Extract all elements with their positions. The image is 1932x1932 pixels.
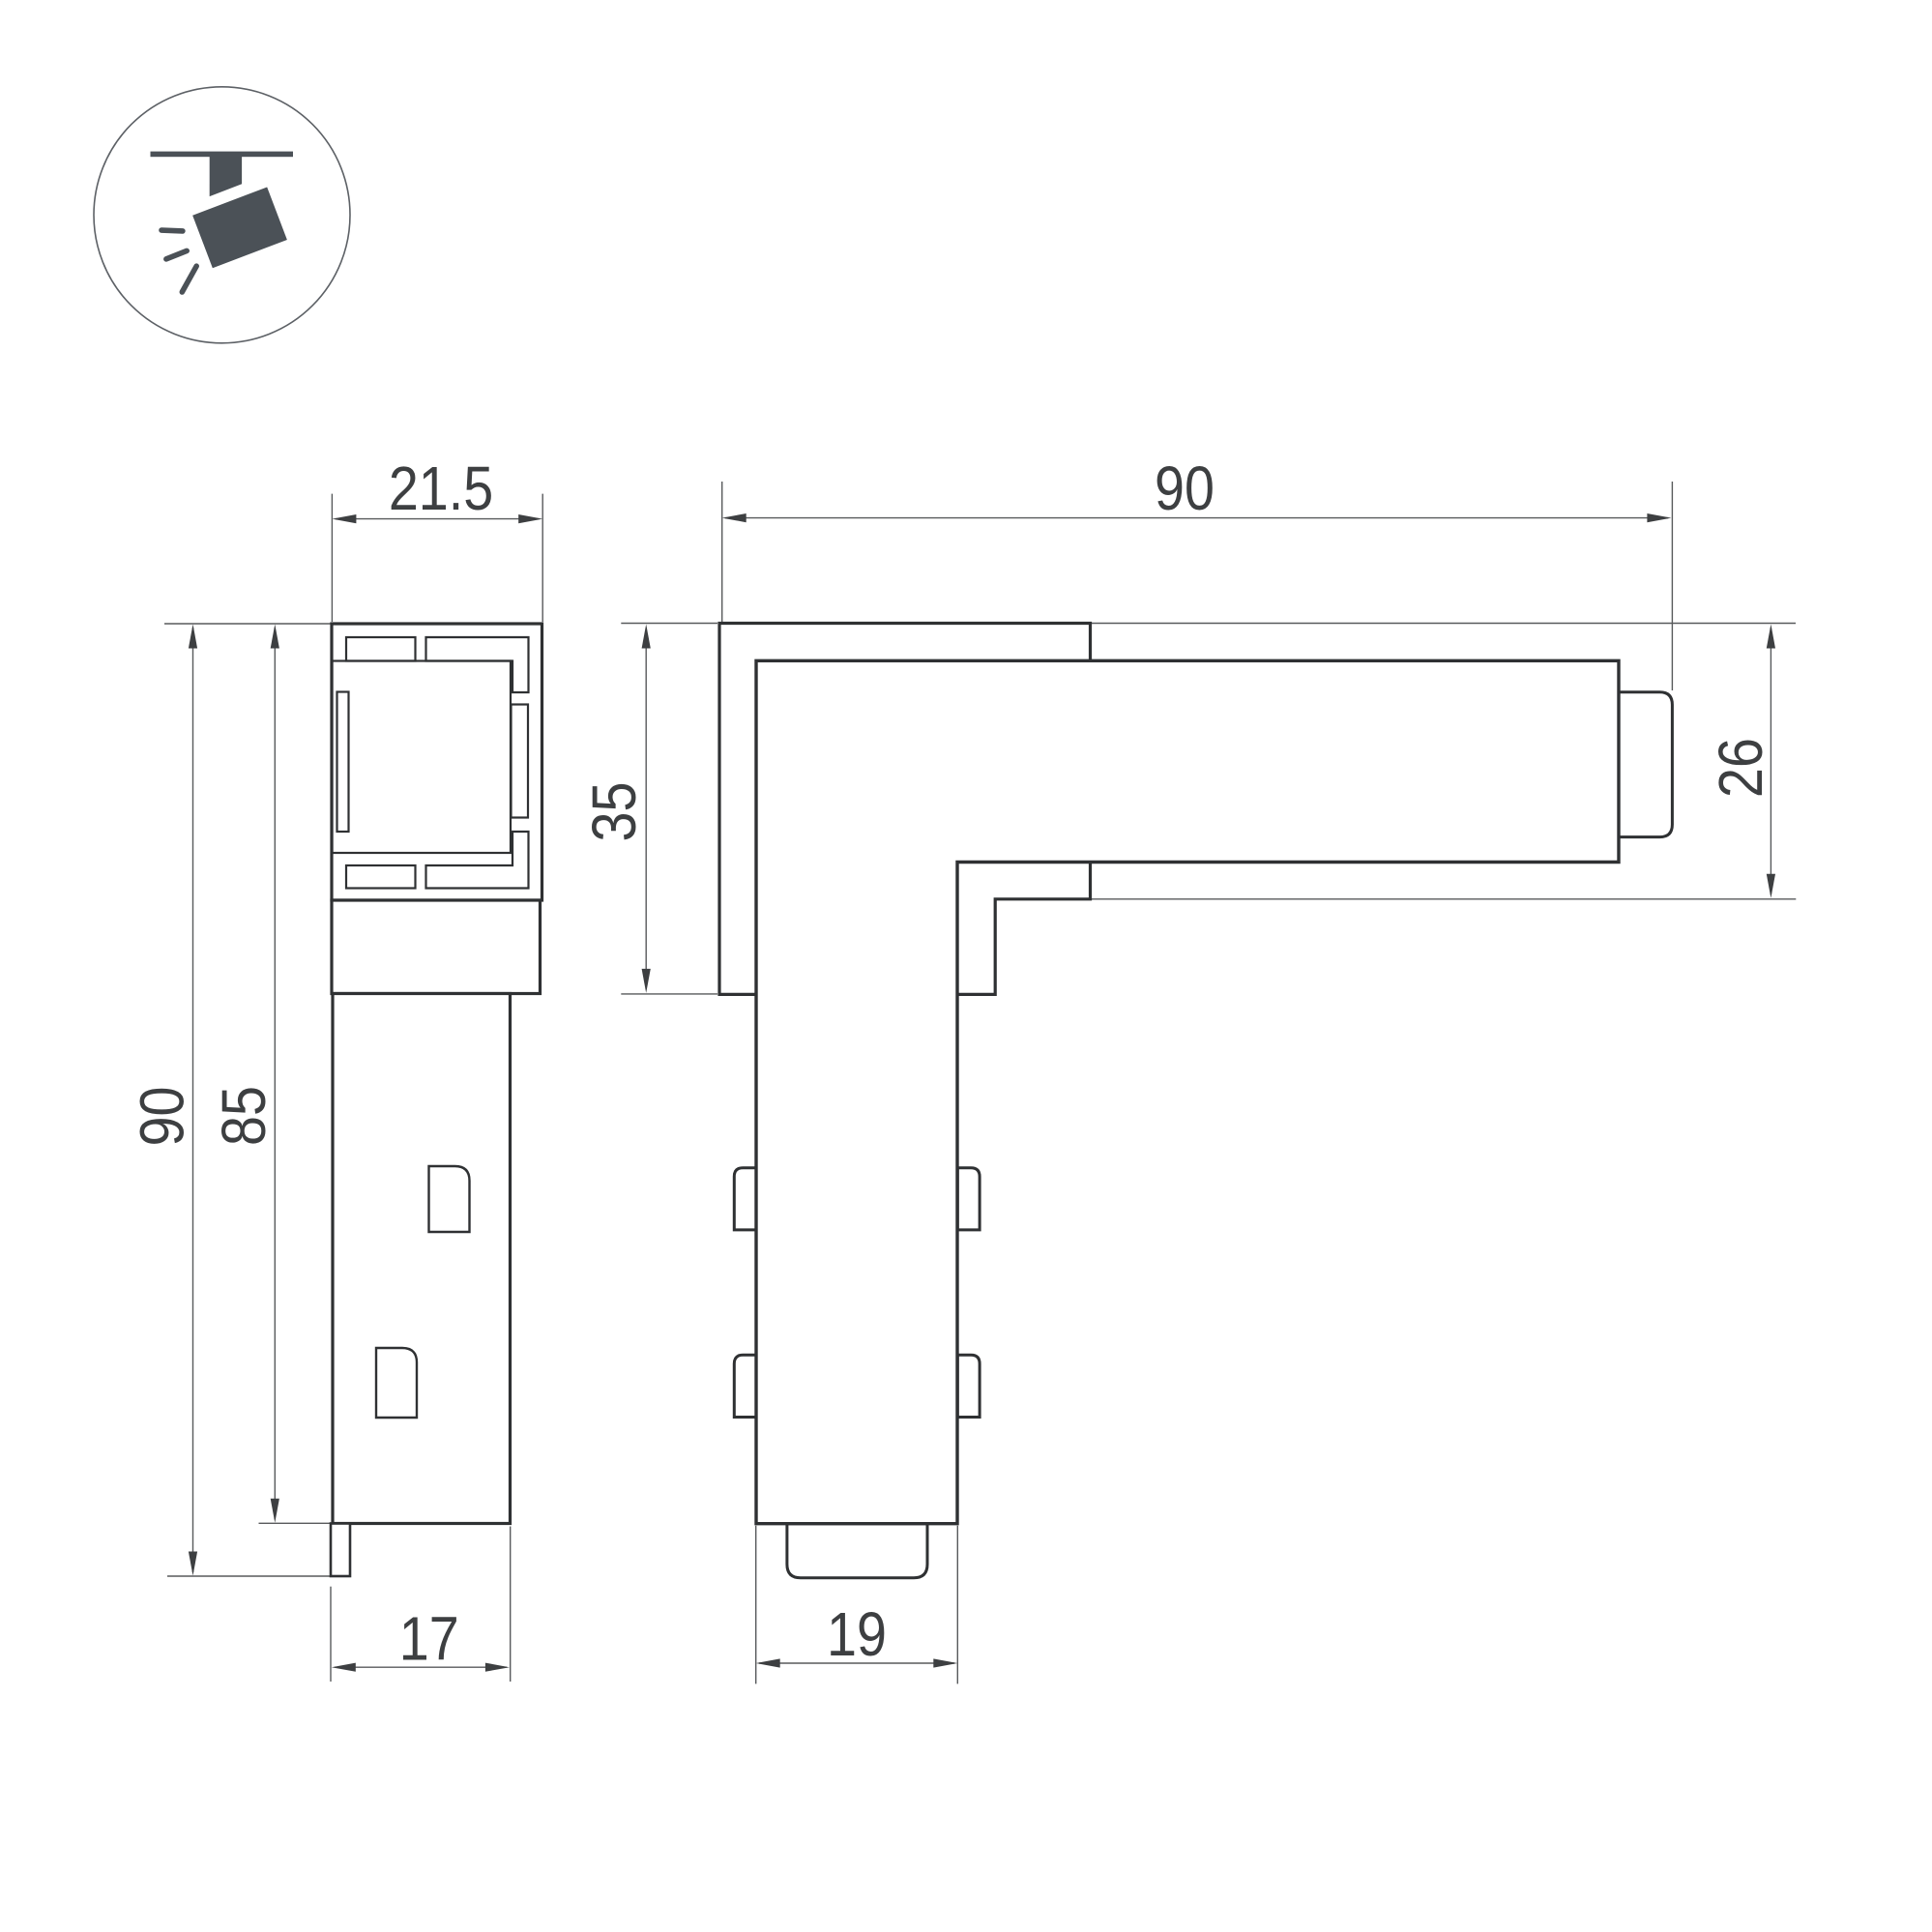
svg-text:85: 85 [209, 1086, 278, 1146]
svg-text:90: 90 [1155, 454, 1215, 523]
svg-text:90: 90 [128, 1087, 196, 1147]
svg-text:17: 17 [399, 1604, 459, 1673]
svg-text:21.5: 21.5 [389, 454, 493, 523]
svg-text:35: 35 [579, 782, 648, 842]
svg-text:26: 26 [1706, 738, 1774, 798]
svg-text:19: 19 [827, 1599, 887, 1668]
